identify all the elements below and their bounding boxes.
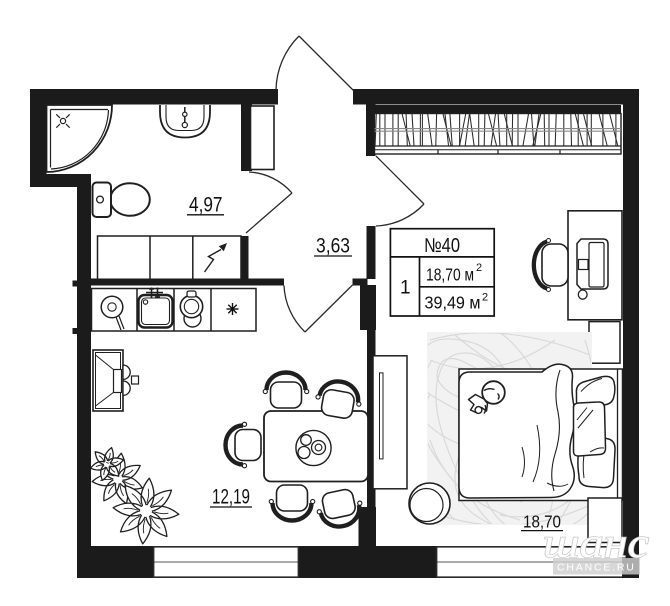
svg-text:1: 1 bbox=[400, 278, 411, 299]
svg-text:12,19: 12,19 bbox=[212, 486, 250, 509]
svg-text:CHANCE.RU: CHANCE.RU bbox=[557, 562, 636, 574]
svg-text:3,63: 3,63 bbox=[316, 235, 350, 258]
svg-text:39,49 м: 39,49 м bbox=[425, 293, 481, 313]
svg-text:2: 2 bbox=[482, 292, 488, 304]
svg-text:№40: №40 bbox=[424, 235, 460, 257]
svg-text:18,70 м: 18,70 м bbox=[426, 265, 474, 285]
svg-text:2: 2 bbox=[476, 262, 482, 274]
svg-text:4,97: 4,97 bbox=[189, 194, 223, 217]
